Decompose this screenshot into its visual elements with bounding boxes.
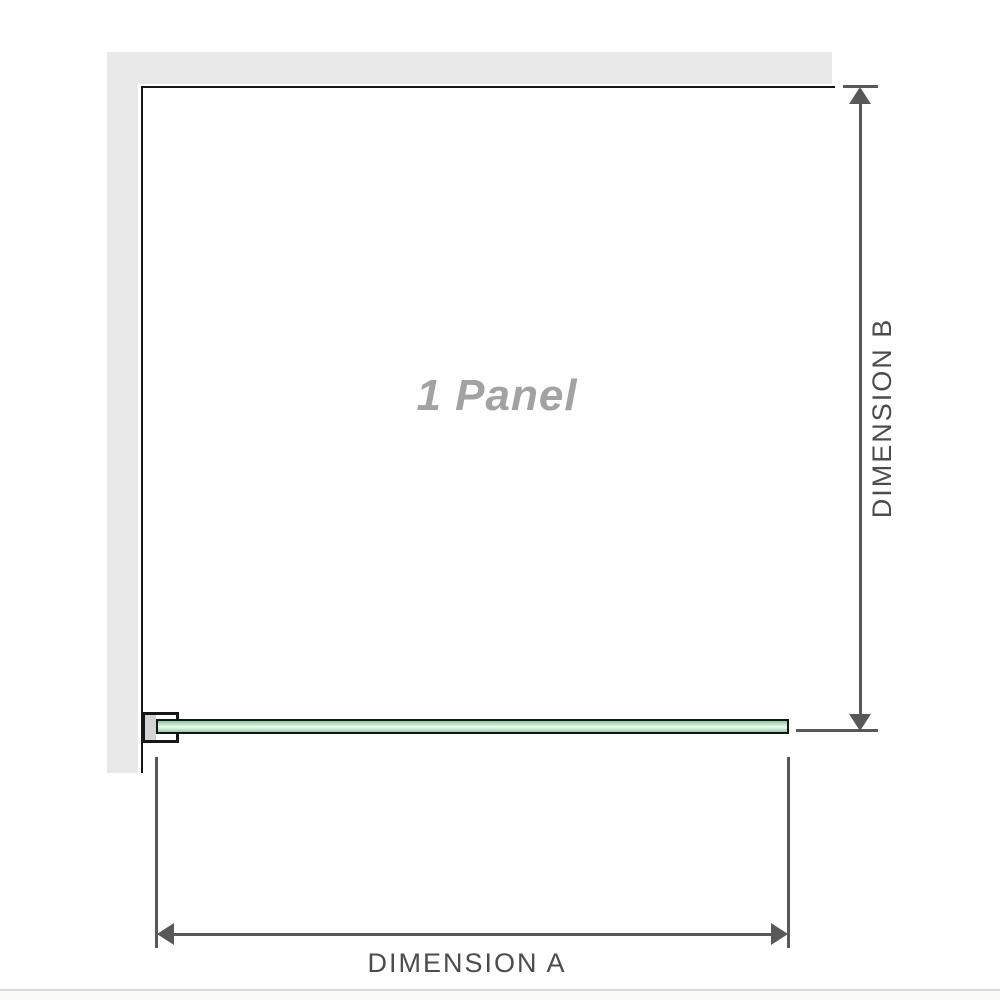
below-separator-area xyxy=(0,991,1000,1000)
dimension-b-label: DIMENSION B xyxy=(867,268,897,568)
bracket-wall-pad xyxy=(145,715,156,740)
wall-inner-edge-left xyxy=(141,86,143,773)
dimension-a-arrow-right-icon xyxy=(771,923,788,945)
panel-count-label: 1 Panel xyxy=(347,368,647,424)
dimension-a-extension-left xyxy=(155,757,158,948)
dimension-a-extension-right xyxy=(787,757,790,948)
dimension-b-arrow-down-icon xyxy=(849,714,871,731)
glass-panel-bar xyxy=(156,719,789,734)
dimension-a-line xyxy=(165,933,780,936)
shower-panel-diagram: 1 Panel DIMENSION B DIMENSION A xyxy=(0,0,1000,1000)
dimension-b-line xyxy=(859,100,862,717)
dimension-b-arrow-up-icon xyxy=(849,87,871,104)
wall-top-band xyxy=(107,52,832,84)
wall-left-band xyxy=(107,52,138,773)
dimension-a-label: DIMENSION A xyxy=(317,946,617,980)
dimension-a-arrow-left-icon xyxy=(157,923,174,945)
wall-inner-edge-top xyxy=(141,86,835,88)
